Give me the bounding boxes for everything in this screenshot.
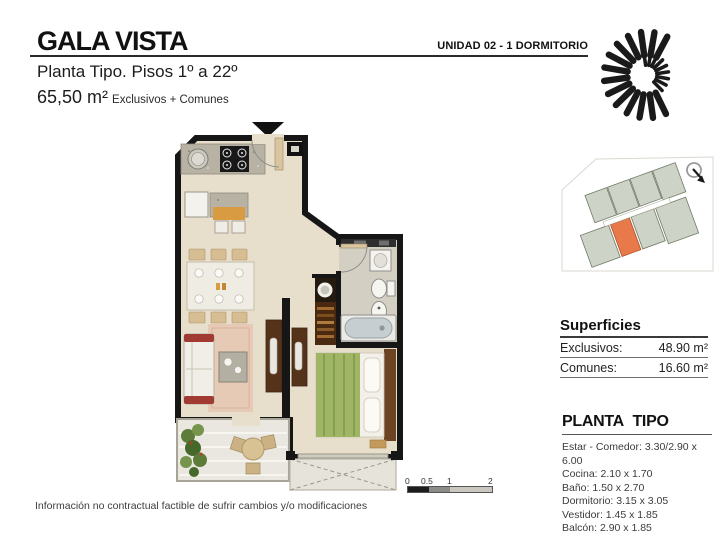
area-value: 65,50 m² [37,87,108,107]
stool [232,221,245,233]
superficies-section: Superficies Exclusivos: 48.90 m² Comunes… [560,317,708,378]
bathroom [336,237,400,348]
key-plan [556,154,718,276]
room-dimension: Vestidor: 1.45 x 1.85 [562,509,712,523]
pillow [364,398,380,432]
dining-area [187,249,254,323]
row-value: 48.90 m² [659,341,708,355]
superficies-heading: Superficies [560,317,708,338]
spiral-logo-icon [585,12,709,134]
scale-label: 2 [488,476,493,486]
superficies-row-exclusivos: Exclusivos: 48.90 m² [560,338,708,358]
balcony-door-opening [232,415,260,426]
bedroom-window [298,454,388,458]
scale-label: 0.5 [421,476,433,486]
scale-bar: 0 0.5 1 2 [407,476,493,494]
row-label: Comunes: [560,361,617,375]
entry-door [275,138,283,170]
room-dimension: Baño: 1.50 x 2.70 [562,482,712,496]
fridge [185,192,208,217]
divider-wall [282,298,290,420]
row-value: 16.60 m² [659,361,708,375]
brochure-page: GALA VISTA UNIDAD 02 - 1 DORMITORIO Plan… [0,0,720,540]
room-dimension: Balcón: 2.90 x 1.85 [562,522,712,536]
scale-label: 0 [405,476,410,486]
balcony-table [242,438,264,460]
stool [215,221,228,233]
disclaimer-text: Información no contractual factible de s… [35,500,367,512]
headboard [384,349,396,441]
scale-label: 1 [447,476,452,486]
toilet-tank [387,281,395,296]
room-dimension: Cocina: 2.10 x 1.70 [562,468,712,482]
room-dimension: Dormitorio: 3.15 x 3.05 [562,495,712,509]
logo-inner-rays [644,54,668,91]
room-dimension: Estar - Comedor: 3.30/2.90 x 6.00 [562,441,712,468]
header-rule [30,55,588,57]
island-base [213,207,245,220]
vestidor [312,274,338,345]
coffee-table [219,352,247,382]
page-title: GALA VISTA [37,26,188,57]
area-line: 65,50 m²Exclusivos + Comunes [37,87,229,108]
balcony [177,415,289,481]
row-label: Exclusivos: [560,341,623,355]
plan-subtitle: Planta Tipo. Pisos 1º a 22º [37,62,237,82]
area-note: Exclusivos + Comunes [112,94,229,106]
superficies-row-comunes: Comunes: 16.60 m² [560,358,708,378]
floor-plan [158,118,442,504]
bathroom-door [341,244,367,248]
bench [370,440,386,448]
planta-tipo-heading: PLANTA TIPO [562,413,712,435]
pillow [364,358,380,392]
planta-tipo-section: PLANTA TIPO Estar - Comedor: 3.30/2.90 x… [562,413,712,536]
unit-label: UNIDAD 02 - 1 DORMITORIO [378,40,588,52]
toilet [372,279,387,298]
scale-bar-strip [407,486,493,493]
